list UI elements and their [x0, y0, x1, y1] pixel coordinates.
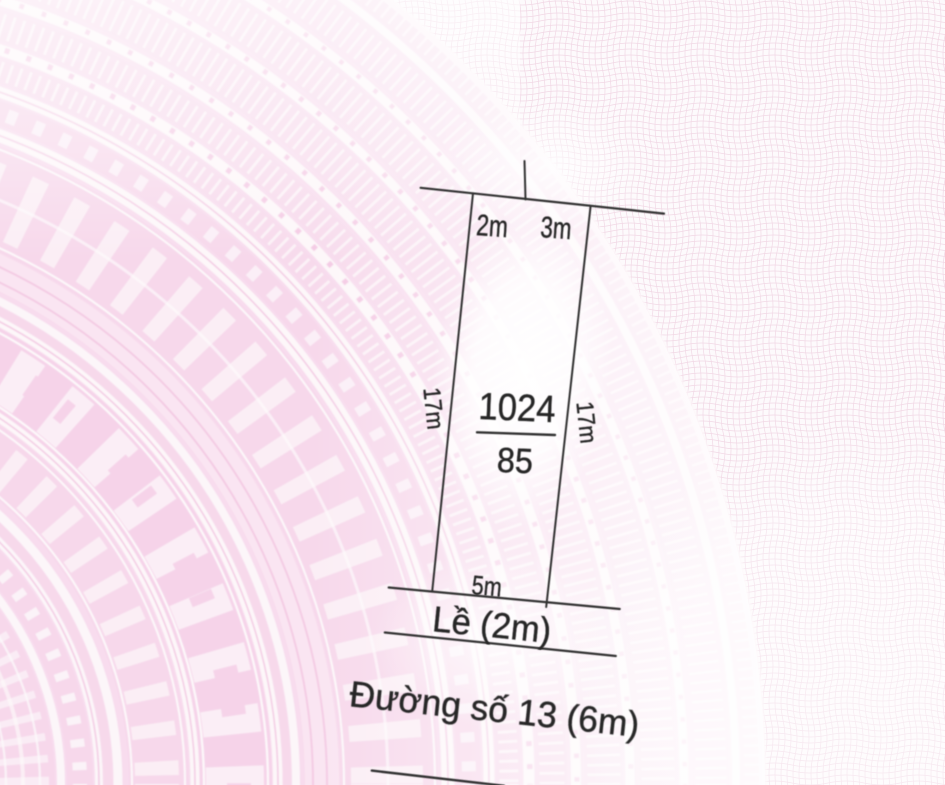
- svg-text:17m: 17m: [570, 400, 601, 445]
- svg-text:2m: 2m: [475, 209, 509, 244]
- svg-text:3m: 3m: [539, 211, 572, 246]
- svg-text:5m: 5m: [470, 570, 503, 603]
- svg-text:17m: 17m: [417, 386, 448, 431]
- svg-text:1024: 1024: [478, 386, 557, 431]
- svg-text:85: 85: [496, 441, 534, 482]
